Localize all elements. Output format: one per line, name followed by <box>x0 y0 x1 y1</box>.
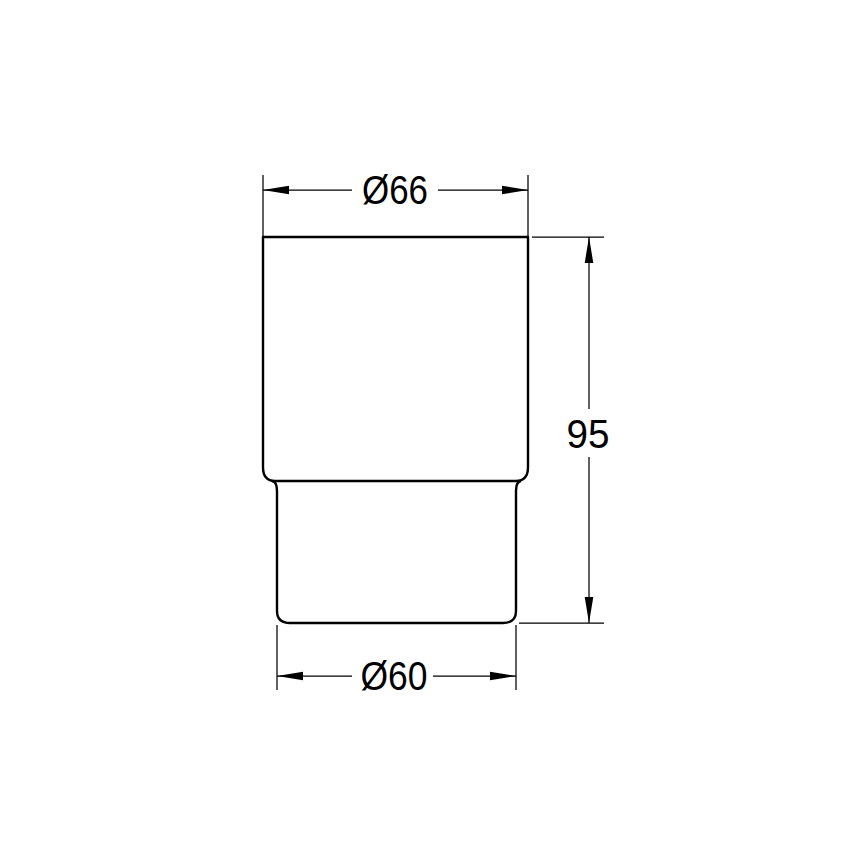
dimension-label-height: 95 <box>567 411 610 457</box>
dimension-top-diameter: Ø66 <box>263 167 528 236</box>
dimension-height: 95 <box>519 237 610 623</box>
arrowhead-right-icon <box>502 186 528 195</box>
tumbler-body <box>263 237 528 623</box>
arrowhead-right-icon <box>490 672 516 681</box>
dimension-label-bottom-diameter: Ø60 <box>361 653 428 699</box>
dimension-label-top-diameter: Ø66 <box>362 167 428 213</box>
arrowhead-left-icon <box>263 186 289 195</box>
dimension-bottom-diameter: Ø60 <box>277 625 516 699</box>
arrowhead-left-icon <box>277 672 303 681</box>
technical-drawing-canvas: Ø66 95 Ø60 <box>0 0 868 868</box>
tumbler-dimension-drawing: Ø66 95 Ø60 <box>0 0 868 868</box>
arrowhead-down-icon <box>585 597 594 623</box>
arrowhead-up-icon <box>585 237 594 263</box>
tumbler-upper-section-outline <box>263 237 528 481</box>
tumbler-lower-section-outline <box>272 481 521 623</box>
